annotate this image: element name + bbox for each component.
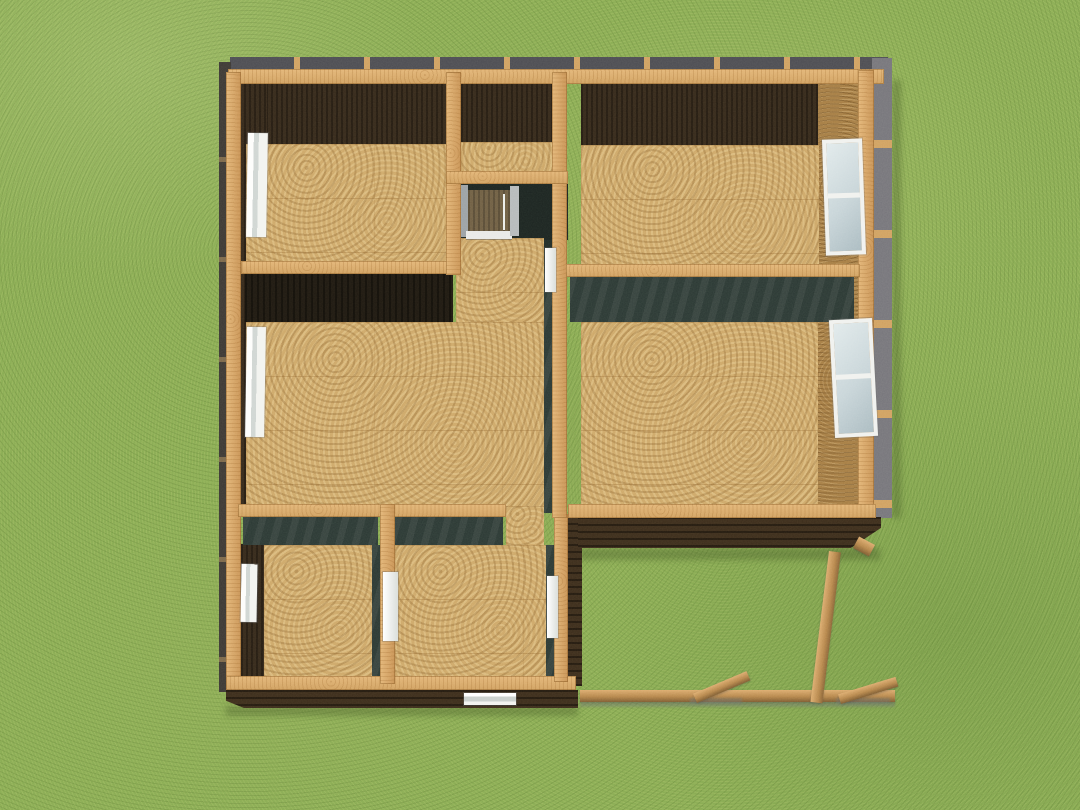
east-rim-joist xyxy=(872,58,892,518)
entry-door-frame-left xyxy=(461,185,468,237)
floor-room-northeast xyxy=(581,145,819,266)
top-plate-east-wall xyxy=(858,70,874,518)
entry-door-frame-right xyxy=(510,186,519,236)
wall-face-room-southwest-north xyxy=(243,517,378,545)
floor-room-northwest xyxy=(246,144,448,263)
floor-closet-north-center xyxy=(461,142,553,172)
top-plate-south-wall-lower xyxy=(226,676,576,690)
house-shadow-east xyxy=(892,80,901,518)
top-plate-wall-northeast-divider xyxy=(566,264,860,277)
floor-room-east-center xyxy=(581,322,818,508)
north-wall-face-room-northeast xyxy=(581,82,821,145)
top-plate-wall-south-divider xyxy=(238,504,506,517)
window-west-south xyxy=(240,564,257,622)
window-west-north xyxy=(246,133,268,237)
top-plate-hall-east-wall xyxy=(552,72,567,518)
window-west-center xyxy=(245,327,266,437)
wall-face-great-room-north xyxy=(245,274,453,322)
floor-hall-opening xyxy=(506,506,544,546)
doorway-south-rooms xyxy=(383,572,398,641)
window-east-north xyxy=(822,138,866,255)
window-east-center xyxy=(829,318,878,438)
south-exterior-siding-main xyxy=(578,517,881,548)
doorway-hall-upper xyxy=(545,248,556,292)
south-exterior-siding-lower xyxy=(226,690,578,708)
floor-great-room-center xyxy=(246,322,544,508)
wall-face-room-east-center-north xyxy=(570,277,854,322)
entry-door-sill xyxy=(466,231,512,239)
entry-door-leaf xyxy=(468,190,510,234)
window-south xyxy=(464,693,516,705)
top-plate-south-wall-main xyxy=(568,504,876,518)
floor-room-south-center xyxy=(395,545,546,677)
north-wall-face-closet xyxy=(461,82,554,142)
north-wall-face-room-northwest xyxy=(241,82,448,144)
floor-room-southwest xyxy=(264,545,372,677)
top-plate-west-wall xyxy=(226,72,241,690)
floor-hallway-center xyxy=(456,238,544,322)
wall-face-room-south-center-north xyxy=(395,517,503,545)
top-plate-entry-header xyxy=(446,171,568,184)
top-plate-wall-northwest-divider xyxy=(241,261,461,274)
doorway-hall-lower xyxy=(547,576,558,638)
3d-viewport[interactable] xyxy=(0,0,1080,810)
